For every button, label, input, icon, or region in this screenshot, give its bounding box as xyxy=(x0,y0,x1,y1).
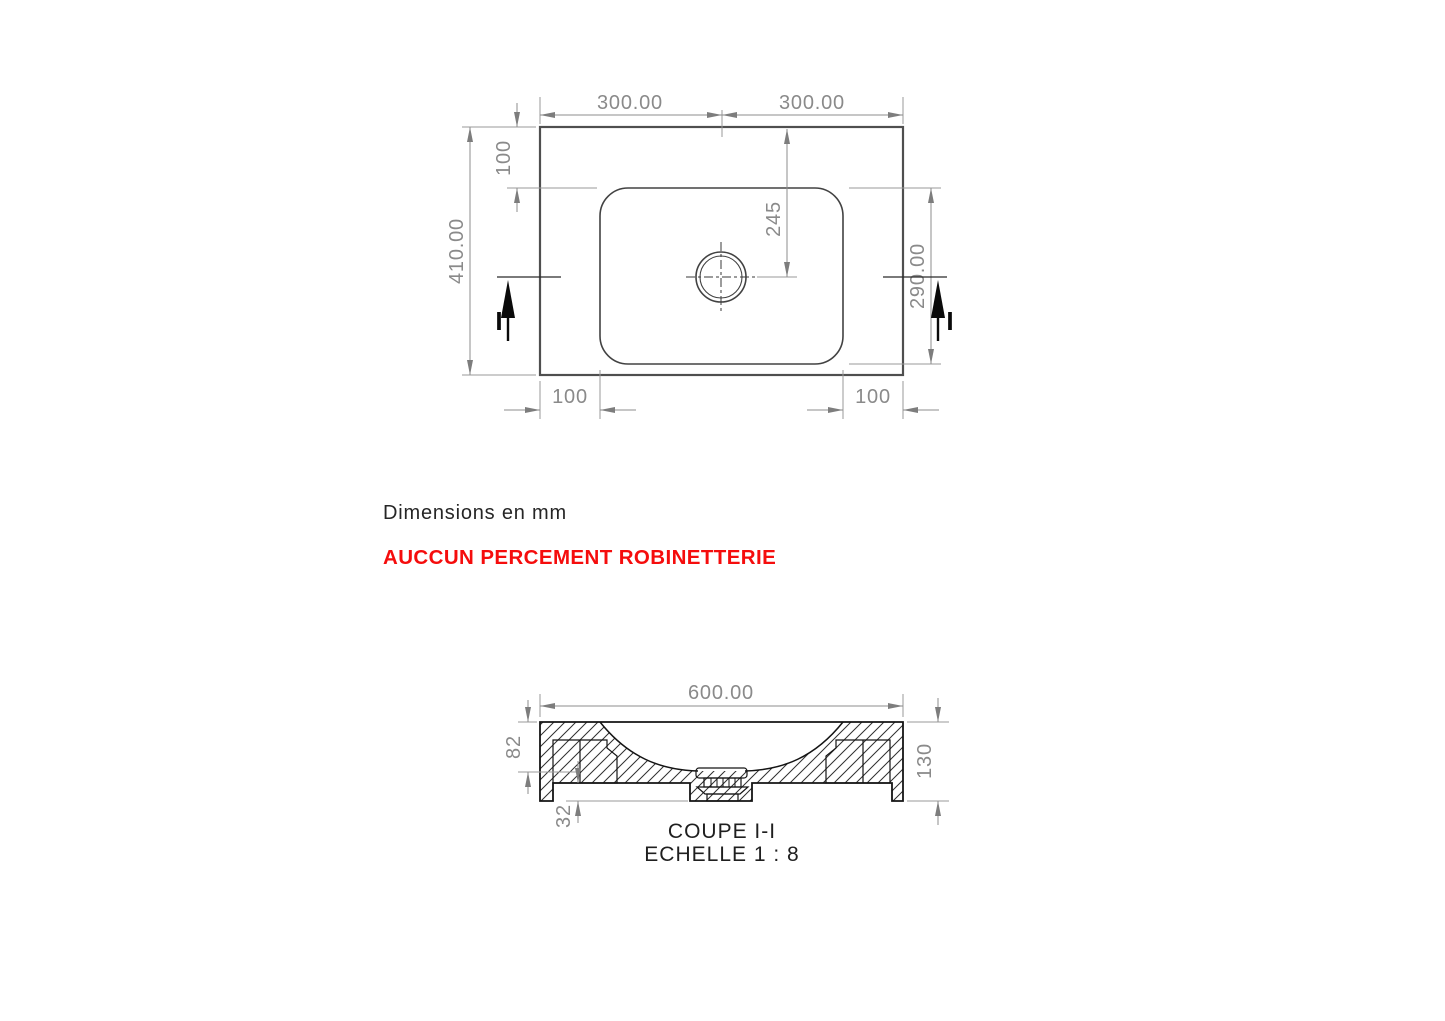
units-note: Dimensions en mm xyxy=(383,502,567,524)
plan-view: 300.00 300.00 100 410.00 245 290.00 xyxy=(446,92,954,419)
drain-hole xyxy=(686,242,756,312)
dim-basin-top-offset: 100 xyxy=(493,103,517,212)
section-view: 600.00 82 130 32 COUPE I-I ECHELLE 1 : 8 xyxy=(503,682,949,866)
dim-edge-thickness: 130 xyxy=(914,698,938,825)
section-arrow-icon xyxy=(931,280,945,318)
dim-text-basin-left-offset: 100 xyxy=(552,386,588,408)
dim-text-width-left: 300.00 xyxy=(597,92,663,114)
dim-bowl-depth: 82 xyxy=(503,700,528,794)
dim-basin-right-offset: 100 xyxy=(807,386,939,410)
dim-text-width-right: 300.00 xyxy=(779,92,845,114)
dim-text-basin-top-offset: 100 xyxy=(493,140,515,176)
dim-width-right: 300.00 xyxy=(722,92,903,115)
dim-text-drain-from-top: 245 xyxy=(763,201,785,237)
section-cut-label-left: I xyxy=(495,306,502,336)
dim-text-edge-thickness: 130 xyxy=(914,743,936,779)
dim-basin-left-offset: 100 xyxy=(504,386,636,410)
dim-section-width: 600.00 xyxy=(540,682,903,706)
dim-text-basin-right-offset: 100 xyxy=(855,386,891,408)
warning-note: AUCCUN PERCEMENT ROBINETTERIE xyxy=(383,546,776,569)
section-scale-label: ECHELLE 1 : 8 xyxy=(644,843,799,866)
section-cut-label-right: I xyxy=(946,306,953,336)
dim-text-bowl-depth: 82 xyxy=(503,735,525,759)
dim-width-left: 300.00 xyxy=(540,92,722,115)
section-title: COUPE I-I xyxy=(668,820,776,843)
drain-outer-circle xyxy=(696,252,746,302)
dim-basin-depth: 290.00 xyxy=(907,188,931,364)
drawing-page: 300.00 300.00 100 410.00 245 290.00 xyxy=(0,0,1445,1021)
section-cut-mark-left: I xyxy=(495,277,561,341)
basin-outline xyxy=(600,188,843,364)
technical-drawing-canvas: 300.00 300.00 100 410.00 245 290.00 xyxy=(0,0,1445,1021)
dim-text-basin-depth: 290.00 xyxy=(907,243,929,309)
dim-text-rim-drop: 32 xyxy=(553,804,575,828)
dim-drain-from-top: 245 xyxy=(763,129,787,277)
dim-overall-depth: 410.00 xyxy=(446,127,470,375)
dim-text-overall-depth: 410.00 xyxy=(446,218,468,284)
dim-text-section-width: 600.00 xyxy=(688,682,754,704)
section-arrow-icon xyxy=(501,280,515,318)
